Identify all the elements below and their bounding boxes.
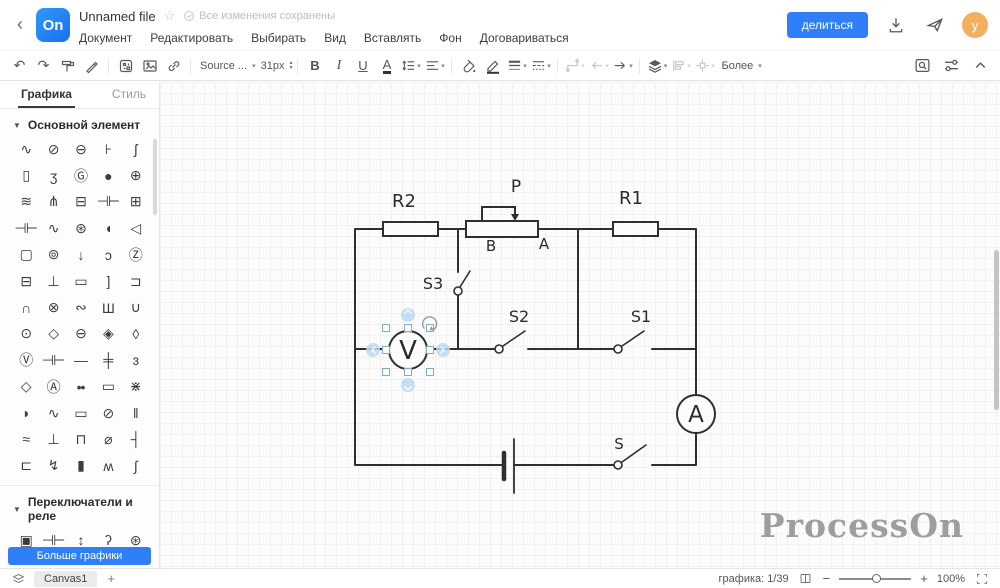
qr-table-icon bbox=[118, 58, 134, 74]
shape-symbol[interactable]: ▯ bbox=[12, 162, 39, 188]
zoom-slider-knob[interactable] bbox=[872, 574, 881, 583]
undo-button[interactable]: ↶ bbox=[8, 54, 31, 78]
shape-symbol[interactable]: ⊐ bbox=[122, 268, 149, 294]
arrow-start-button[interactable]: ▾ bbox=[587, 54, 610, 78]
shape-symbol[interactable]: ↯ bbox=[39, 453, 66, 479]
shape-symbol[interactable]: ⊓ bbox=[67, 426, 94, 452]
shapes-sidebar: Графика Стиль ▼ Основной элемент ∿⊘⊖⊦ʃ▯ʒ… bbox=[0, 82, 160, 568]
qr-table-button[interactable] bbox=[114, 54, 137, 78]
shape-symbol[interactable]: ⊗ bbox=[39, 294, 66, 320]
font-size-select[interactable]: 31px▴▾ bbox=[257, 54, 293, 78]
shape-symbol[interactable]: ʃ bbox=[122, 136, 149, 162]
shape-symbol[interactable]: Ⓩ bbox=[122, 242, 149, 268]
shape-symbol[interactable]: ⊣⊢ bbox=[39, 347, 66, 373]
align-text-button[interactable]: ▾ bbox=[423, 54, 446, 78]
shape-symbol[interactable]: ● bbox=[94, 162, 121, 188]
connector-icon bbox=[565, 58, 580, 73]
shape-symbol[interactable]: Ⓐ bbox=[39, 374, 66, 400]
font-color-button[interactable]: A bbox=[375, 54, 398, 78]
chevron-down-icon: ▼ bbox=[13, 505, 21, 514]
shape-symbol[interactable]: ▢ bbox=[12, 242, 39, 268]
add-canvas-button[interactable]: + bbox=[107, 571, 115, 586]
shape-symbol[interactable]: ⊞ bbox=[122, 189, 149, 215]
download-icon bbox=[887, 16, 905, 34]
watermark: ProcessOn bbox=[760, 506, 964, 545]
shape-symbol[interactable]: ɔ bbox=[94, 242, 121, 268]
redo-button[interactable]: ↷ bbox=[32, 54, 55, 78]
redo-icon: ↷ bbox=[38, 57, 50, 74]
shape-symbol[interactable]: ⊚ bbox=[39, 242, 66, 268]
document-title[interactable]: Unnamed file bbox=[79, 9, 156, 24]
menu-collaborate[interactable]: Договариваться bbox=[480, 31, 569, 45]
shape-symbol[interactable]: ◁ bbox=[122, 215, 149, 241]
circuit-diagram: R2 P B A R1 S3 V bbox=[160, 82, 1000, 570]
more-button[interactable]: Более▾ bbox=[717, 54, 761, 78]
minimap-button[interactable] bbox=[798, 571, 814, 587]
shape-symbol[interactable]: ┤ bbox=[122, 426, 149, 452]
italic-button[interactable]: I bbox=[327, 54, 350, 78]
menu-bar: Документ Редактировать Выбирать Вид Вста… bbox=[79, 31, 569, 45]
brush-icon bbox=[84, 58, 100, 74]
distribute-icon bbox=[695, 58, 710, 73]
send-button[interactable] bbox=[923, 13, 946, 37]
shape-symbol[interactable]: ⊣⊢ bbox=[12, 215, 39, 241]
fill-color-icon bbox=[461, 58, 477, 74]
shape-symbol[interactable]: ◇ bbox=[39, 321, 66, 347]
shape-symbol[interactable]: ⊕ bbox=[122, 162, 149, 188]
svg-text:S1: S1 bbox=[631, 307, 651, 326]
shape-symbol[interactable]: ◗ bbox=[12, 400, 39, 426]
shape-symbol[interactable]: ◇ bbox=[12, 374, 39, 400]
shape-symbol[interactable]: ⊥ bbox=[39, 426, 66, 452]
line-spacing-button[interactable]: ▾ bbox=[399, 54, 422, 78]
canvas-tab[interactable]: Canvas1 bbox=[34, 571, 97, 587]
shape-symbol[interactable]: ▭ bbox=[67, 268, 94, 294]
format-painter-icon bbox=[60, 58, 76, 74]
send-icon bbox=[926, 16, 944, 34]
resistor-r1[interactable]: R1 bbox=[613, 188, 658, 236]
star-icon[interactable]: ☆ bbox=[164, 8, 176, 24]
sidebar-tabs: Графика Стиль bbox=[0, 82, 159, 109]
zoom-out-button[interactable]: − bbox=[823, 571, 831, 586]
sidebar-scrollbar[interactable] bbox=[153, 139, 157, 215]
shape-symbol[interactable]: ▭ bbox=[94, 374, 121, 400]
line-color-icon bbox=[485, 58, 501, 74]
svg-text:V: V bbox=[399, 336, 417, 366]
download-button[interactable] bbox=[884, 13, 907, 37]
voltmeter[interactable]: V bbox=[389, 331, 427, 369]
chevron-down-icon: ▼ bbox=[13, 121, 21, 130]
shape-symbol[interactable]: ⊘ bbox=[94, 400, 121, 426]
sheets-button[interactable] bbox=[10, 571, 26, 587]
shape-symbol[interactable]: ∪ bbox=[122, 294, 149, 320]
shape-symbol[interactable]: — bbox=[67, 347, 94, 373]
shape-symbol[interactable]: ◊ bbox=[122, 321, 149, 347]
shape-symbol[interactable]: ⊖ bbox=[67, 136, 94, 162]
collapse-toolbar-button[interactable] bbox=[969, 54, 992, 78]
shape-symbol[interactable]: ⌀ bbox=[94, 426, 121, 452]
shape-symbol[interactable]: ▮ bbox=[67, 453, 94, 479]
line-width-button[interactable]: ▾ bbox=[505, 54, 528, 78]
align-objects-button[interactable]: ▾ bbox=[669, 54, 692, 78]
connector-button[interactable]: ▾ bbox=[563, 54, 586, 78]
align-objects-icon bbox=[671, 58, 686, 73]
line-spacing-icon bbox=[401, 58, 416, 73]
shape-symbol[interactable]: •• bbox=[67, 374, 94, 400]
avatar[interactable]: y bbox=[962, 12, 988, 38]
svg-text:A: A bbox=[688, 402, 704, 428]
switch-s[interactable]: S bbox=[614, 435, 646, 469]
switch-s3[interactable]: S3 bbox=[423, 271, 470, 295]
status-bar: Canvas1 + графика: 1/39 − + 100% bbox=[0, 568, 1000, 588]
shape-symbol[interactable]: ⊖ bbox=[67, 321, 94, 347]
svg-text:A: A bbox=[539, 235, 550, 253]
saved-status: Все изменения сохранены bbox=[183, 10, 335, 22]
section-switches-relays[interactable]: ▼ Переключатели и реле bbox=[0, 486, 159, 527]
line-style-button[interactable]: ▾ bbox=[529, 54, 552, 78]
basic-elements-grid: ∿⊘⊖⊦ʃ▯ʒⒼ●⊕≋⋔⊟⊣⊢⊞⊣⊢∿⊛◖◁▢⊚↓ɔⓏ⊟⊥▭]⊐∩⊗∾Ш∪⊙◇⊖… bbox=[0, 136, 159, 479]
line-width-icon bbox=[507, 58, 522, 73]
image-button[interactable] bbox=[138, 54, 161, 78]
shape-symbol[interactable]: ⋇ bbox=[122, 374, 149, 400]
find-replace-button[interactable] bbox=[911, 54, 934, 78]
svg-text:B: B bbox=[486, 237, 496, 255]
zoom-in-button[interactable]: + bbox=[920, 571, 928, 586]
adjust-icon bbox=[943, 57, 960, 74]
shape-symbol[interactable]: ◈ bbox=[94, 321, 121, 347]
shape-symbol[interactable]: ▭ bbox=[67, 400, 94, 426]
menu-view[interactable]: Вид bbox=[324, 31, 346, 45]
shape-symbol[interactable]: ╪ bbox=[94, 347, 121, 373]
layers-button[interactable]: ▾ bbox=[645, 54, 668, 78]
link-button[interactable] bbox=[162, 54, 185, 78]
saved-check-icon bbox=[183, 10, 195, 22]
shape-symbol[interactable]: ⋔ bbox=[39, 189, 66, 215]
font-size-stepper[interactable]: ▴▾ bbox=[289, 61, 292, 71]
adjust-button[interactable] bbox=[940, 54, 963, 78]
fill-color-button[interactable] bbox=[457, 54, 480, 78]
shape-symbol[interactable]: ⊏ bbox=[12, 453, 39, 479]
shape-symbol[interactable]: ◖ bbox=[94, 215, 121, 241]
line-color-button[interactable] bbox=[481, 54, 504, 78]
ammeter[interactable]: A bbox=[677, 395, 715, 433]
shape-symbol[interactable]: ∿ bbox=[12, 136, 39, 162]
link-icon bbox=[166, 58, 182, 74]
underline-button[interactable]: U bbox=[351, 54, 374, 78]
tab-graphics[interactable]: Графика bbox=[18, 82, 75, 108]
shape-symbol[interactable]: ‖ bbox=[122, 400, 149, 426]
toolbar: ↶ ↷ Source ...▾ 31px▴▾ B I U A ▾ ▾ ▾ ▾ ▾… bbox=[0, 50, 1000, 81]
svg-text:R1: R1 bbox=[619, 188, 643, 209]
shape-symbol[interactable]: ∫ bbox=[122, 453, 149, 479]
minimap-icon bbox=[799, 572, 812, 585]
shape-symbol[interactable]: ≋ bbox=[12, 189, 39, 215]
shape-symbol[interactable]: ɜ bbox=[122, 347, 149, 373]
find-replace-icon bbox=[914, 57, 931, 74]
font-family-select[interactable]: Source ...▾ bbox=[196, 54, 256, 78]
menu-background[interactable]: Фон bbox=[439, 31, 461, 45]
shape-symbol[interactable]: ⊣⊢ bbox=[94, 189, 121, 215]
arrow-start-icon bbox=[589, 58, 604, 73]
shape-symbol[interactable]: Ⓖ bbox=[67, 162, 94, 188]
graphics-count-label: графика: 1/39 bbox=[719, 573, 789, 585]
menu-insert[interactable]: Вставлять bbox=[364, 31, 421, 45]
svg-text:S3: S3 bbox=[423, 274, 443, 293]
potentiometer-p[interactable]: P B A bbox=[466, 177, 550, 255]
distribute-button[interactable]: ▾ bbox=[693, 54, 716, 78]
arrow-end-icon bbox=[613, 58, 628, 73]
fullscreen-button[interactable] bbox=[974, 571, 990, 587]
image-icon bbox=[142, 58, 158, 74]
shape-symbol[interactable]: ⊟ bbox=[67, 189, 94, 215]
shape-symbol[interactable]: ∾ bbox=[67, 294, 94, 320]
shape-symbol[interactable]: ⊦ bbox=[94, 136, 121, 162]
shape-symbol[interactable]: Ⓥ bbox=[12, 347, 39, 373]
shape-symbol[interactable]: ⊟ bbox=[12, 268, 39, 294]
svg-text:S: S bbox=[614, 435, 624, 453]
shape-symbol[interactable]: ↓ bbox=[67, 242, 94, 268]
menu-document[interactable]: Документ bbox=[79, 31, 132, 45]
shape-symbol[interactable]: ʒ bbox=[39, 162, 66, 188]
shape-symbol[interactable]: ∿ bbox=[39, 400, 66, 426]
shape-symbol[interactable]: ≈ bbox=[12, 426, 39, 452]
format-painter-button[interactable] bbox=[56, 54, 79, 78]
line-style-icon bbox=[531, 58, 546, 73]
shape-symbol[interactable]: ⊥ bbox=[39, 268, 66, 294]
menu-edit[interactable]: Редактировать bbox=[150, 31, 233, 45]
drawing-canvas[interactable]: R2 P B A R1 S3 V bbox=[160, 82, 1000, 568]
switch-s2[interactable]: S2 bbox=[495, 307, 529, 353]
tab-style[interactable]: Стиль bbox=[109, 82, 149, 108]
fullscreen-icon bbox=[976, 573, 988, 585]
svg-text:S2: S2 bbox=[509, 307, 529, 326]
shape-symbol[interactable]: ⊘ bbox=[39, 136, 66, 162]
resistor-r2[interactable]: R2 bbox=[383, 191, 438, 236]
shape-symbol[interactable]: ] bbox=[94, 268, 121, 294]
shape-symbol[interactable]: ⊙ bbox=[12, 321, 39, 347]
canvas-scrollbar[interactable] bbox=[994, 250, 999, 410]
shape-symbol[interactable]: Ш bbox=[94, 294, 121, 320]
battery[interactable] bbox=[504, 439, 514, 493]
section-basic-elements[interactable]: ▼ Основной элемент bbox=[0, 109, 159, 136]
align-text-icon bbox=[425, 58, 440, 73]
shape-symbol[interactable]: ⊛ bbox=[67, 215, 94, 241]
header: ‹ On Unnamed file ☆ Все изменения сохран… bbox=[0, 0, 1000, 50]
shape-symbol[interactable]: ∩ bbox=[12, 294, 39, 320]
svg-text:P: P bbox=[511, 177, 521, 197]
share-button[interactable]: делиться bbox=[787, 12, 868, 38]
menu-select[interactable]: Выбирать bbox=[251, 31, 306, 45]
brush-button[interactable] bbox=[80, 54, 103, 78]
layers-icon bbox=[647, 58, 663, 74]
arrow-end-button[interactable]: ▾ bbox=[611, 54, 634, 78]
switch-s1[interactable]: S1 bbox=[614, 307, 651, 353]
zoom-slider[interactable] bbox=[839, 578, 911, 580]
shape-symbol[interactable]: ∿ bbox=[39, 215, 66, 241]
sheets-stack-icon bbox=[12, 572, 25, 585]
zoom-level[interactable]: 100% bbox=[937, 573, 965, 585]
svg-text:R2: R2 bbox=[392, 191, 416, 212]
shape-symbol[interactable]: ʍ bbox=[94, 453, 121, 479]
bold-button[interactable]: B bbox=[303, 54, 326, 78]
app-logo[interactable]: On bbox=[36, 8, 70, 42]
undo-icon: ↶ bbox=[14, 57, 26, 74]
more-graphics-button[interactable]: Больше графики bbox=[8, 547, 151, 565]
back-icon[interactable]: ‹ bbox=[10, 14, 30, 34]
collapse-icon bbox=[973, 58, 988, 73]
